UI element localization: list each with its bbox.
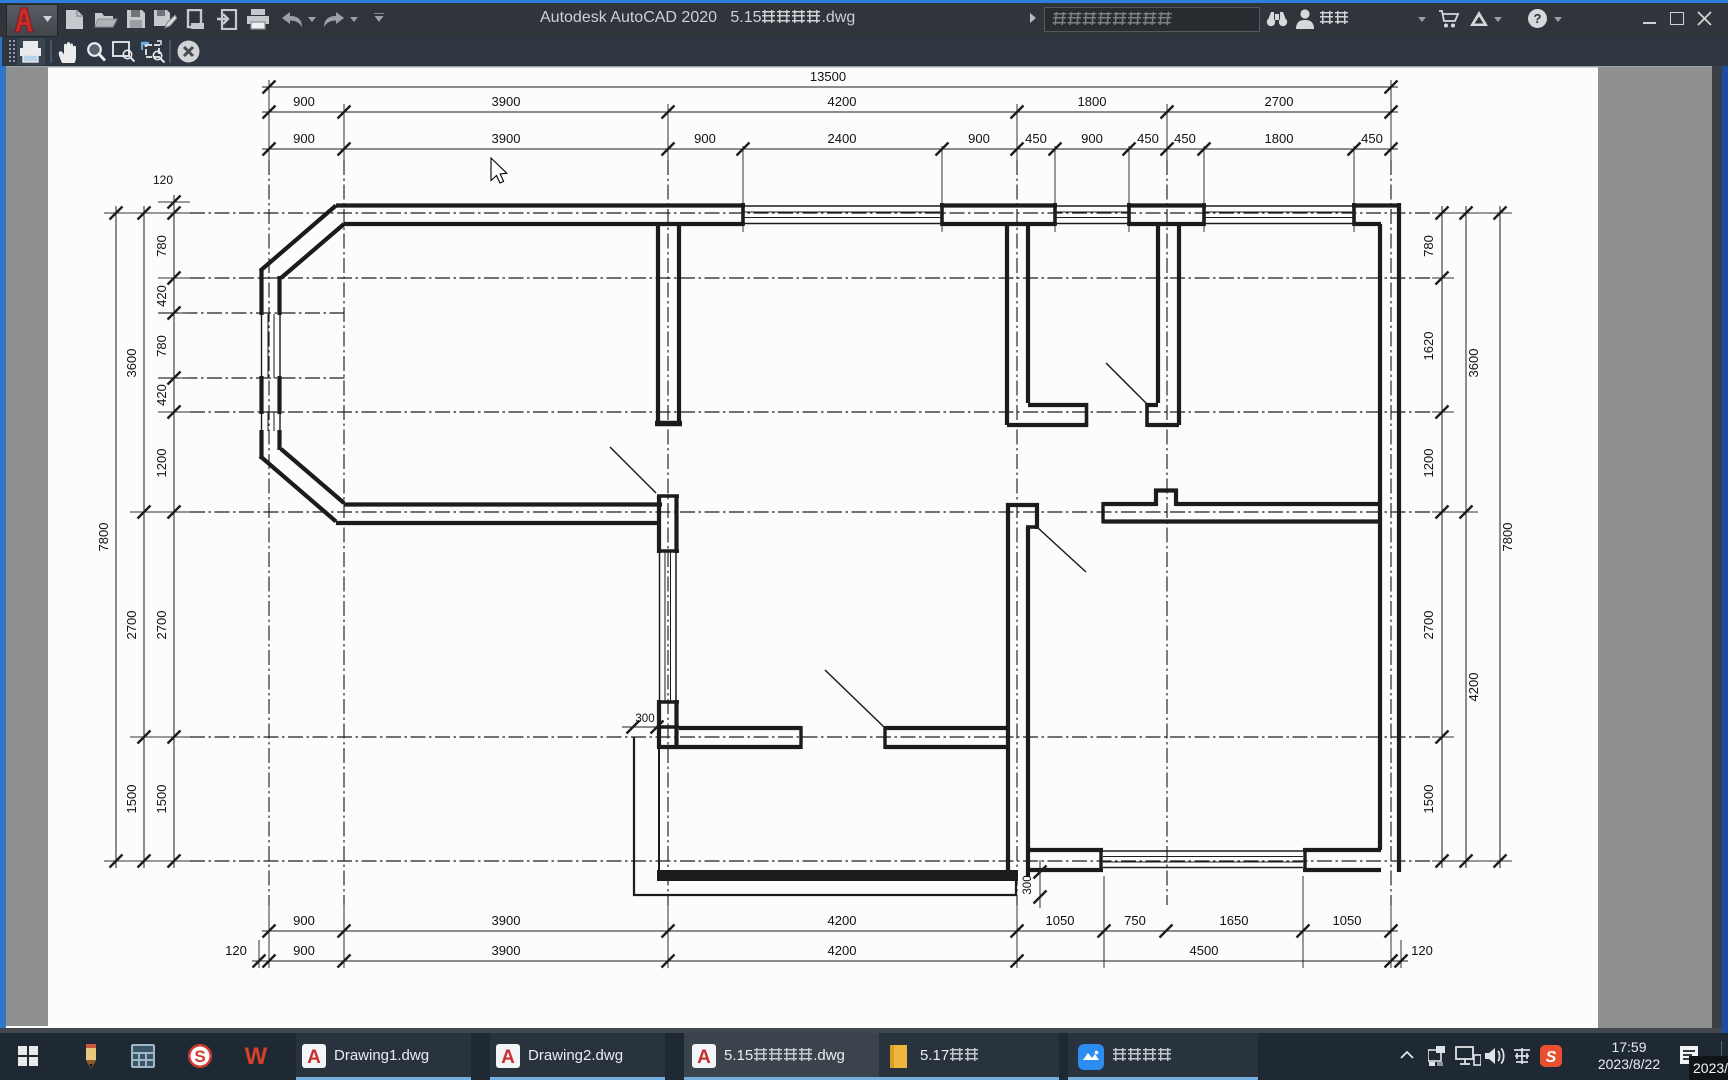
svg-text:900: 900 [293, 913, 315, 928]
svg-text:2700: 2700 [1265, 94, 1294, 109]
svg-text:120: 120 [1411, 943, 1433, 958]
svg-text:4200: 4200 [828, 94, 857, 109]
svg-text:S: S [1546, 1049, 1557, 1066]
svg-text:450: 450 [1025, 131, 1047, 146]
svg-text:1050: 1050 [1046, 913, 1075, 928]
svg-text:3900: 3900 [492, 913, 521, 928]
svg-text:2400: 2400 [828, 131, 857, 146]
svg-text:1200: 1200 [1421, 449, 1436, 478]
svg-text:1500: 1500 [1421, 785, 1436, 814]
svg-text:W: W [245, 1045, 268, 1067]
svg-text:780: 780 [154, 235, 169, 257]
svg-text:A: A [697, 1047, 711, 1068]
svg-text:1500: 1500 [154, 785, 169, 814]
svg-text:300: 300 [1022, 875, 1034, 894]
svg-text:3900: 3900 [492, 94, 521, 109]
svg-text:1500: 1500 [124, 785, 139, 814]
svg-text:4200: 4200 [1466, 673, 1481, 702]
svg-text:900: 900 [968, 131, 990, 146]
svg-text:780: 780 [1421, 235, 1436, 257]
svg-text:120: 120 [225, 943, 247, 958]
svg-text:120: 120 [153, 173, 173, 187]
svg-text:7800: 7800 [1500, 523, 1515, 552]
svg-text:300: 300 [635, 713, 654, 725]
svg-text:7800: 7800 [96, 523, 111, 552]
svg-text:2700: 2700 [1421, 611, 1436, 640]
svg-text:1620: 1620 [1421, 332, 1436, 361]
svg-text:1800: 1800 [1078, 94, 1107, 109]
svg-text:2700: 2700 [124, 611, 139, 640]
svg-text:450: 450 [1137, 131, 1159, 146]
svg-text:420: 420 [154, 384, 169, 406]
svg-text:S: S [194, 1047, 205, 1066]
svg-text:900: 900 [1081, 131, 1103, 146]
svg-text:420: 420 [154, 285, 169, 307]
svg-text:13500: 13500 [810, 69, 846, 84]
svg-text:A: A [307, 1047, 321, 1068]
svg-text:3900: 3900 [492, 943, 521, 958]
svg-text:3600: 3600 [1466, 349, 1481, 378]
svg-text:A: A [501, 1047, 515, 1068]
svg-text:?: ? [1534, 11, 1542, 26]
svg-text:4200: 4200 [828, 913, 857, 928]
svg-text:450: 450 [1174, 131, 1196, 146]
svg-text:1650: 1650 [1220, 913, 1249, 928]
svg-text:900: 900 [293, 94, 315, 109]
svg-text:900: 900 [694, 131, 716, 146]
svg-text:3600: 3600 [124, 349, 139, 378]
svg-text:750: 750 [1124, 913, 1146, 928]
svg-text:1200: 1200 [154, 449, 169, 478]
svg-text:450: 450 [1361, 131, 1383, 146]
svg-text:4200: 4200 [828, 943, 857, 958]
svg-text:1050: 1050 [1333, 913, 1362, 928]
svg-text:900: 900 [293, 131, 315, 146]
svg-text:2700: 2700 [154, 611, 169, 640]
svg-text:1800: 1800 [1265, 131, 1294, 146]
svg-text:3900: 3900 [492, 131, 521, 146]
svg-text:4500: 4500 [1190, 943, 1219, 958]
svg-text:780: 780 [154, 335, 169, 357]
svg-text:900: 900 [293, 943, 315, 958]
